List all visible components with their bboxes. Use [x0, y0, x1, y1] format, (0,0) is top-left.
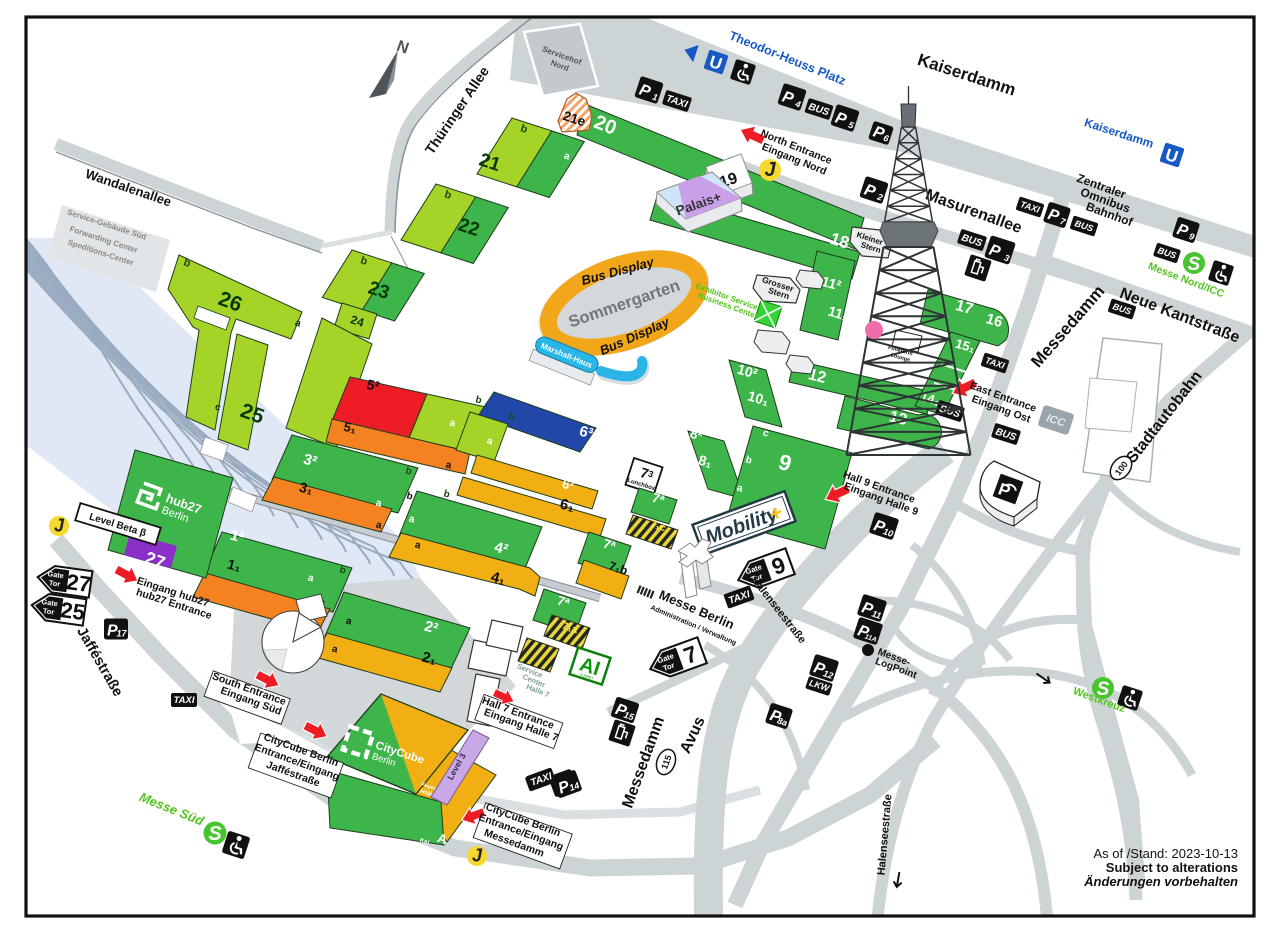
- svg-text:S: S: [1188, 254, 1201, 275]
- svg-text:S: S: [208, 823, 222, 845]
- svg-text:Änderungen vorbehalten: Änderungen vorbehalten: [1083, 874, 1238, 889]
- svg-text:J: J: [54, 516, 65, 536]
- svg-text:25: 25: [59, 597, 87, 625]
- svg-text:J: J: [472, 846, 483, 866]
- svg-text:Tor: Tor: [48, 578, 61, 589]
- svg-text:27: 27: [65, 569, 93, 597]
- svg-text:Tor: Tor: [42, 606, 55, 617]
- svg-text:J: J: [764, 159, 776, 181]
- svg-text:As of /Stand: 2023-10-13: As of /Stand: 2023-10-13: [1093, 846, 1238, 861]
- svg-text:TAXI: TAXI: [174, 695, 195, 706]
- svg-text:Subject to alterations: Subject to alterations: [1106, 860, 1238, 875]
- svg-text:17: 17: [116, 629, 127, 639]
